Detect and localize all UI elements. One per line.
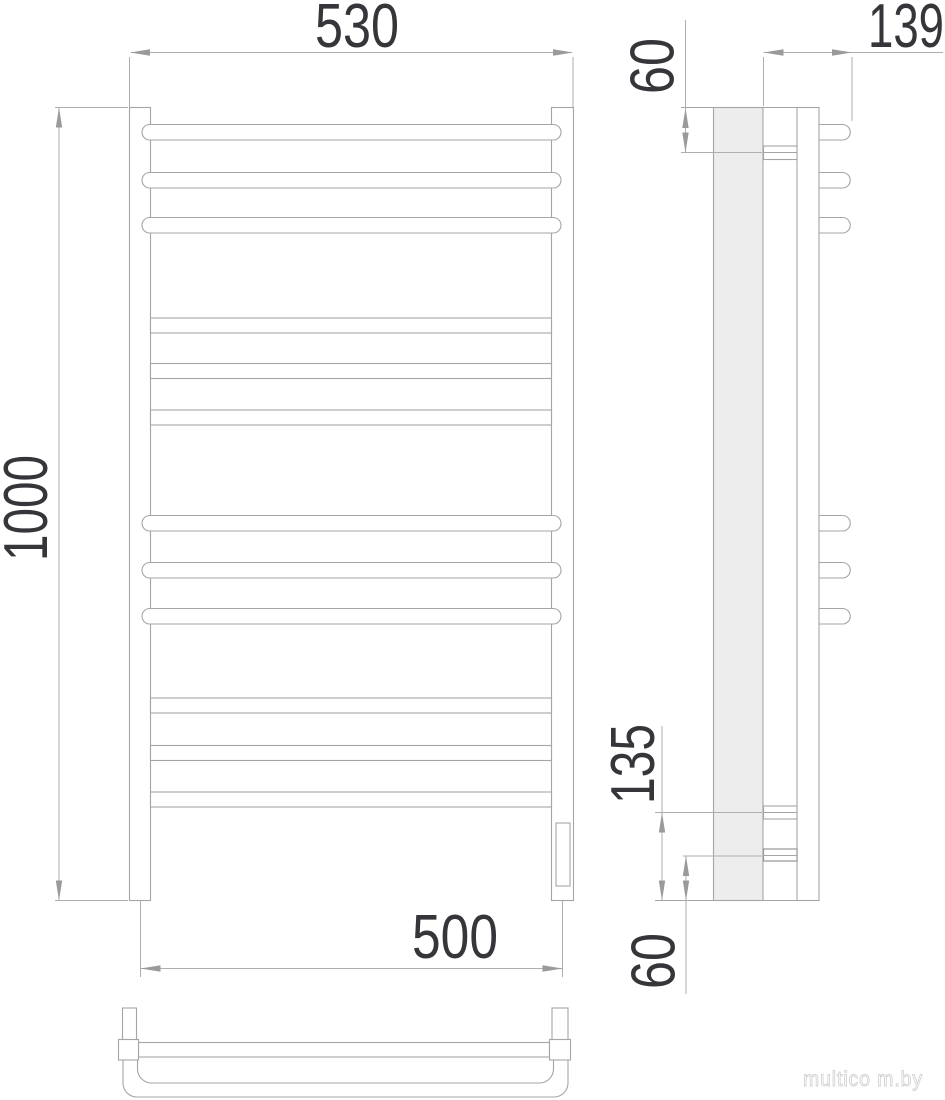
rung-pin bbox=[819, 563, 850, 579]
dim-side-depth: 139 bbox=[764, 0, 945, 121]
flat-rung bbox=[151, 318, 552, 333]
rounded-rung bbox=[142, 516, 561, 532]
dim-label-side-bottom-upper: 135 bbox=[599, 724, 668, 804]
dim-label-side-top-offset: 60 bbox=[619, 38, 688, 94]
flat-rung bbox=[151, 364, 552, 379]
flat-rung bbox=[151, 792, 552, 807]
rounded-rung bbox=[142, 173, 561, 189]
rounded-rung bbox=[142, 563, 561, 579]
dim-lines bbox=[55, 108, 128, 901]
rung-pin bbox=[819, 218, 850, 234]
front-view bbox=[130, 108, 574, 901]
drawing-svg: 530 1000 500 139 60 135 bbox=[0, 0, 945, 1100]
dim-label-side-depth: 139 bbox=[868, 0, 944, 61]
heating-element-housing bbox=[556, 823, 570, 886]
u-tube-inner bbox=[138, 1060, 554, 1083]
rounded-rung bbox=[142, 218, 561, 234]
dim-label-front-width-top: 530 bbox=[315, 0, 399, 61]
flat-rung bbox=[151, 746, 552, 761]
bottom-view bbox=[119, 1008, 571, 1097]
straight-tube-plan bbox=[139, 1043, 550, 1058]
side-post bbox=[797, 108, 819, 901]
wall-strip bbox=[714, 108, 764, 901]
mount-stub-right bbox=[552, 1008, 568, 1041]
dim-lines bbox=[141, 901, 563, 977]
rung-pin bbox=[819, 609, 850, 625]
u-tube-outer bbox=[123, 1060, 568, 1097]
rounded-rung bbox=[142, 125, 561, 141]
wall-brackets bbox=[764, 146, 798, 861]
dim-front-width-bottom: 500 bbox=[141, 901, 563, 977]
flat-rung bbox=[151, 410, 552, 425]
flat-rung bbox=[151, 698, 552, 713]
rung-pin bbox=[819, 173, 850, 189]
post-section-left bbox=[119, 1040, 139, 1061]
dim-label-side-bottom-lower: 60 bbox=[620, 933, 689, 989]
dim-label-front-height: 1000 bbox=[0, 455, 61, 561]
dim-label-front-width-bottom: 500 bbox=[412, 903, 498, 972]
rounded-rung bbox=[142, 609, 561, 625]
post-section-right bbox=[550, 1040, 571, 1061]
rung-pin bbox=[819, 125, 850, 141]
side-rung-pins bbox=[819, 125, 850, 625]
towel-rail-technical-drawing: 530 1000 500 139 60 135 bbox=[0, 0, 945, 1100]
dim-front-width-top: 530 bbox=[130, 0, 574, 107]
dim-lines bbox=[764, 53, 944, 122]
watermark-text: multico m.by bbox=[803, 1068, 923, 1091]
mount-stub-left bbox=[123, 1008, 137, 1041]
side-view bbox=[655, 108, 850, 901]
dim-front-height: 1000 bbox=[0, 108, 128, 901]
rung-pin bbox=[819, 516, 850, 532]
